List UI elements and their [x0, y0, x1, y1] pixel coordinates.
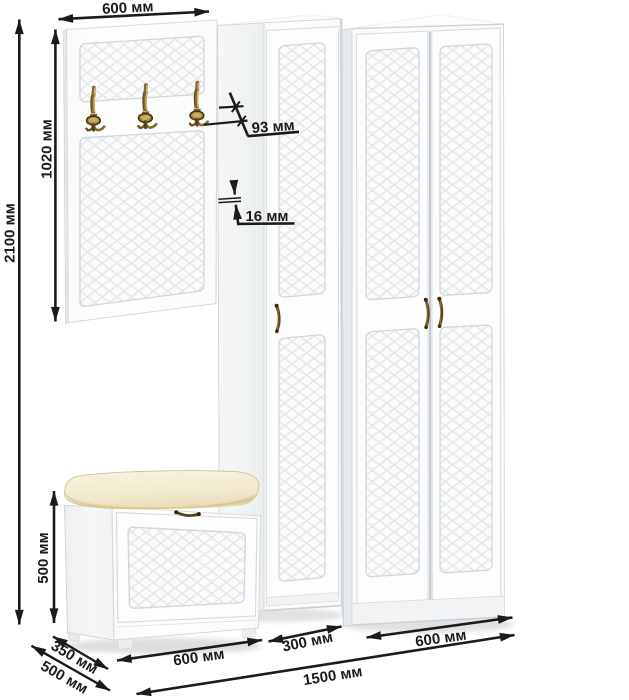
svg-text:1020 мм: 1020 мм	[39, 119, 56, 179]
svg-text:93 мм: 93 мм	[251, 117, 295, 137]
svg-text:16 мм: 16 мм	[245, 208, 288, 225]
svg-text:500 мм: 500 мм	[35, 532, 52, 583]
svg-text:2100 мм: 2100 мм	[2, 203, 19, 263]
svg-text:600 мм: 600 мм	[102, 0, 154, 18]
